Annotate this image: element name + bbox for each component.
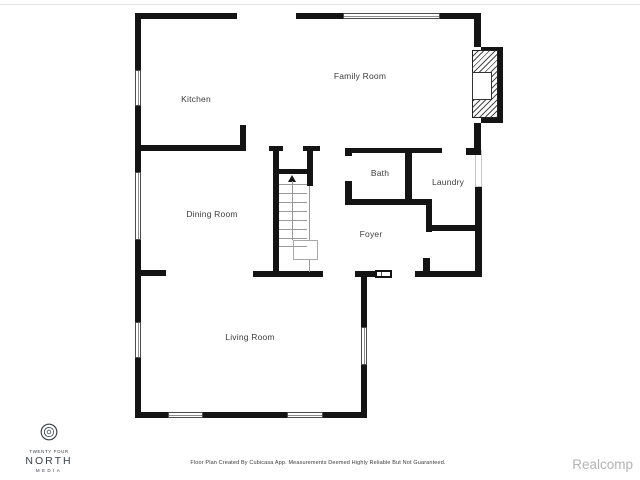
realcomp-watermark: Realcomp — [572, 457, 633, 472]
logo-line3: MEDIA — [24, 468, 74, 473]
stair-tread — [279, 229, 307, 230]
stairs-landing-bar — [279, 169, 307, 174]
wall-segment — [307, 146, 313, 186]
wall-segment — [405, 148, 412, 205]
wall-segment — [135, 358, 141, 418]
wall-segment — [474, 123, 481, 150]
stair-tread — [279, 238, 307, 239]
window-symbol — [361, 327, 367, 365]
wall-segment — [345, 199, 412, 205]
logo-line2: NORTH — [24, 455, 74, 467]
window-symbol — [135, 70, 141, 106]
room-label-dining-room: Dining Room — [186, 209, 237, 219]
wall-segment — [135, 13, 141, 70]
window-symbol — [135, 172, 141, 240]
wall-segment — [345, 148, 442, 153]
room-label-bath: Bath — [371, 168, 389, 178]
stairs-outline — [309, 186, 310, 240]
floorplan-page: Kitchen Family Room Bath Laundry Dining … — [0, 0, 640, 480]
disclaimer-text: Floor Plan Created By Cubicasa App. Meas… — [190, 460, 445, 466]
door-opening — [475, 150, 482, 187]
stairs-outline — [293, 240, 318, 260]
wall-segment — [415, 271, 482, 277]
stair-tread — [279, 211, 307, 212]
front-door-symbol — [375, 270, 392, 278]
room-label-family-room: Family Room — [334, 71, 386, 81]
window-symbol — [343, 13, 440, 19]
wall-segment — [361, 272, 367, 327]
stair-tread — [279, 193, 307, 194]
window-symbol — [168, 412, 203, 418]
fireplace-firebox — [472, 72, 492, 100]
wall-segment — [135, 412, 168, 418]
wall-segment — [203, 412, 287, 418]
room-label-kitchen: Kitchen — [181, 94, 211, 104]
stair-tread — [279, 220, 307, 221]
page-top-divider — [0, 4, 640, 5]
stair-tread — [279, 202, 307, 203]
wall-segment — [466, 148, 481, 155]
window-symbol — [287, 412, 323, 418]
stair-tread — [279, 184, 307, 185]
wall-segment — [481, 118, 503, 123]
wall-segment — [361, 365, 367, 418]
room-label-living-room: Living Room — [225, 332, 274, 342]
wall-segment — [474, 13, 481, 47]
room-label-laundry: Laundry — [432, 177, 464, 187]
room-label-foyer: Foyer — [360, 229, 383, 239]
stairs-outline — [309, 260, 310, 272]
wall-segment — [355, 271, 375, 277]
wall-segment — [296, 13, 344, 19]
aperture-swirl-icon — [39, 422, 59, 442]
wall-segment — [135, 240, 141, 322]
wall-segment — [135, 13, 237, 19]
wall-segment — [138, 145, 246, 151]
twenty-four-north-logo: TWENTY FOUR NORTH MEDIA — [24, 422, 74, 473]
logo-line1: TWENTY FOUR — [24, 449, 74, 454]
wall-segment — [428, 225, 481, 231]
wall-segment — [345, 148, 352, 156]
wall-segment — [240, 125, 246, 151]
wall-segment — [253, 271, 323, 277]
wall-segment — [138, 270, 166, 276]
window-symbol — [135, 322, 141, 358]
wall-segment — [135, 106, 141, 172]
